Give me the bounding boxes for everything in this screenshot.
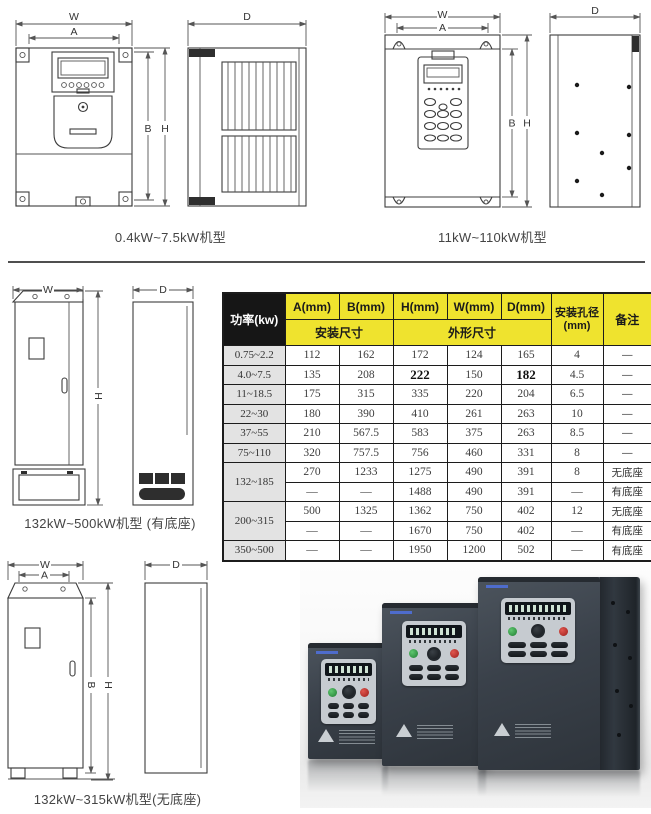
warning-label bbox=[318, 729, 375, 745]
medium-inverter-outline-svg: W A B H D bbox=[340, 5, 645, 220]
table-cell: 182 bbox=[501, 365, 551, 385]
table-cell: 1200 bbox=[447, 541, 501, 561]
keypad-panel bbox=[402, 621, 466, 686]
power-range-cell: 11~18.5 bbox=[223, 385, 285, 405]
table-cell: 有底座 bbox=[603, 482, 651, 502]
header-a: A(mm) bbox=[285, 293, 339, 320]
table-cell: 750 bbox=[447, 502, 501, 522]
dimension-lines: W H D bbox=[13, 284, 193, 505]
table-cell: 402 bbox=[501, 502, 551, 522]
drawing-cabinet-with-base: W H D bbox=[5, 283, 205, 511]
brand-logo bbox=[390, 611, 412, 614]
header-w: W(mm) bbox=[447, 293, 501, 320]
table-cell: 210 bbox=[285, 424, 339, 444]
table-row: 200~3155001325136275040212无底座 bbox=[223, 502, 651, 522]
table-cell: 1670 bbox=[393, 521, 447, 541]
header-hole-diameter: 安装孔径 (mm) bbox=[551, 293, 603, 346]
table-cell: 8 bbox=[551, 443, 603, 463]
dim-label-w: W bbox=[69, 11, 79, 23]
table-cell: 390 bbox=[339, 404, 393, 424]
table-cell: 315 bbox=[339, 385, 393, 405]
warning-triangle-icon bbox=[396, 724, 412, 737]
table-cell: 150 bbox=[447, 365, 501, 385]
header-outline-group: 外形尺寸 bbox=[393, 320, 551, 346]
table-cell: 222 bbox=[393, 365, 447, 385]
mounting-holes bbox=[611, 601, 615, 605]
table-row: 11~18.51753153352202046.5— bbox=[223, 385, 651, 405]
inverter-top-cap bbox=[478, 577, 600, 582]
stop-button bbox=[360, 688, 369, 697]
drawing-cabinet-no-base: W A B H D bbox=[5, 558, 230, 788]
table-cell: 175 bbox=[285, 385, 339, 405]
dim-label-a: A bbox=[41, 570, 48, 582]
hole-header-line2: (mm) bbox=[552, 320, 603, 333]
table-cell: 1488 bbox=[393, 482, 447, 502]
table-row: 4.0~7.51352082221501824.5— bbox=[223, 365, 651, 385]
table-cell: 无底座 bbox=[603, 463, 651, 483]
table-cell: 112 bbox=[285, 346, 339, 366]
front-view bbox=[16, 48, 132, 206]
power-range-cell: 350~500 bbox=[223, 541, 285, 561]
table-cell: 无底座 bbox=[603, 502, 651, 522]
front-view bbox=[8, 583, 115, 779]
side-view bbox=[133, 302, 193, 505]
warning-label bbox=[396, 724, 453, 740]
table-header-row-1: 功率(kw) A(mm) B(mm) H(mm) W(mm) D(mm) 安装孔… bbox=[223, 293, 651, 320]
datasheet-page: W A B H D bbox=[0, 0, 651, 814]
dim-label-d: D bbox=[243, 11, 251, 23]
dim-label-b: B bbox=[144, 123, 151, 135]
dim-label-h: H bbox=[92, 392, 104, 400]
table-cell: — bbox=[285, 541, 339, 561]
table-cell: — bbox=[603, 404, 651, 424]
inverter-front-panel bbox=[308, 643, 388, 759]
inverter-front-panel bbox=[382, 603, 486, 766]
table-cell: — bbox=[603, 346, 651, 366]
header-remark: 备注 bbox=[603, 293, 651, 346]
dimension-table: 功率(kw) A(mm) B(mm) H(mm) W(mm) D(mm) 安装孔… bbox=[222, 292, 651, 562]
table-row: 37~55210567.55833752638.5— bbox=[223, 424, 651, 444]
table-cell: 1325 bbox=[339, 502, 393, 522]
power-range-cell: 22~30 bbox=[223, 404, 285, 424]
stop-button bbox=[450, 649, 459, 658]
table-cell: 4 bbox=[551, 346, 603, 366]
table-cell: 8.5 bbox=[551, 424, 603, 444]
power-range-cell: 0.75~2.2 bbox=[223, 346, 285, 366]
table-cell: 410 bbox=[393, 404, 447, 424]
inverter-unit-small bbox=[308, 643, 388, 759]
section-divider bbox=[8, 261, 645, 263]
cabinet-base-outline-svg: W H D bbox=[5, 283, 205, 511]
inverter-front-panel bbox=[478, 577, 600, 770]
jog-knob bbox=[427, 647, 441, 661]
reflection-small bbox=[308, 759, 388, 803]
dim-label-d: D bbox=[172, 559, 180, 571]
dimension-lines: W A B H D bbox=[8, 559, 207, 780]
table-cell: 460 bbox=[447, 443, 501, 463]
table-cell: 331 bbox=[501, 443, 551, 463]
dim-label-h: H bbox=[523, 118, 531, 130]
table-cell: 490 bbox=[447, 463, 501, 483]
table-cell: 172 bbox=[393, 346, 447, 366]
table-row: ——1488490391—有底座 bbox=[223, 482, 651, 502]
table-cell: 135 bbox=[285, 365, 339, 385]
dim-label-h: H bbox=[161, 123, 169, 135]
header-d: D(mm) bbox=[501, 293, 551, 320]
table-cell: 756 bbox=[393, 443, 447, 463]
caption-small-inverter: 0.4kW~7.5kW机型 bbox=[8, 227, 333, 246]
table-cell: 1950 bbox=[393, 541, 447, 561]
caption-medium-inverter: 11kW~110kW机型 bbox=[340, 227, 645, 246]
warning-label bbox=[494, 723, 551, 739]
table-cell: — bbox=[285, 521, 339, 541]
inverter-top-cap bbox=[308, 643, 388, 648]
table-cell: 750 bbox=[447, 521, 501, 541]
front-view bbox=[385, 35, 500, 207]
table-cell: 500 bbox=[285, 502, 339, 522]
table-cell: 320 bbox=[285, 443, 339, 463]
keypad-panel bbox=[321, 659, 377, 724]
table-row: 0.75~2.21121621721241654— bbox=[223, 346, 651, 366]
brand-logo bbox=[486, 585, 508, 588]
header-h: H(mm) bbox=[393, 293, 447, 320]
status-led-row bbox=[508, 617, 568, 620]
table-cell: 1233 bbox=[339, 463, 393, 483]
drawing-medium-inverter: W A B H D bbox=[340, 5, 645, 220]
warning-triangle-icon bbox=[494, 723, 510, 736]
dim-label-b: B bbox=[85, 681, 97, 688]
table-cell: 261 bbox=[447, 404, 501, 424]
table-cell: — bbox=[603, 385, 651, 405]
table-cell: 502 bbox=[501, 541, 551, 561]
table-cell: — bbox=[551, 521, 603, 541]
table-row: 75~110320757.57564603318— bbox=[223, 443, 651, 463]
led-display bbox=[325, 663, 373, 676]
power-range-cell: 37~55 bbox=[223, 424, 285, 444]
led-display bbox=[505, 602, 571, 615]
caption-cabinet-with-base: 132kW~500kW机型 (有底座) bbox=[5, 513, 215, 532]
dim-label-d: D bbox=[159, 284, 167, 296]
dim-label-a: A bbox=[70, 26, 77, 38]
run-button bbox=[328, 688, 337, 697]
table-cell: 有底座 bbox=[603, 541, 651, 561]
table-cell: 6.5 bbox=[551, 385, 603, 405]
dim-label-d: D bbox=[591, 5, 599, 17]
table-cell: 10 bbox=[551, 404, 603, 424]
header-power: 功率(kw) bbox=[223, 293, 285, 346]
caption-cabinet-no-base: 132kW~315kW机型(无底座) bbox=[0, 789, 235, 808]
table-cell: 583 bbox=[393, 424, 447, 444]
dim-label-h: H bbox=[102, 681, 114, 689]
table-cell: 有底座 bbox=[603, 521, 651, 541]
table-cell: — bbox=[339, 521, 393, 541]
side-view bbox=[550, 35, 640, 207]
table-cell: 335 bbox=[393, 385, 447, 405]
table-row: 22~3018039041026126310— bbox=[223, 404, 651, 424]
table-cell: 270 bbox=[285, 463, 339, 483]
table-cell: — bbox=[603, 443, 651, 463]
dim-label-b: B bbox=[508, 118, 515, 130]
stop-button bbox=[559, 627, 568, 636]
header-mount-group: 安装尺寸 bbox=[285, 320, 393, 346]
power-range-cell: 75~110 bbox=[223, 443, 285, 463]
run-button bbox=[508, 627, 517, 636]
table-cell: 567.5 bbox=[339, 424, 393, 444]
inverter-unit-medium bbox=[382, 603, 486, 766]
table-cell: 4.5 bbox=[551, 365, 603, 385]
jog-knob bbox=[342, 685, 356, 699]
front-view bbox=[13, 291, 85, 505]
power-range-cell: 4.0~7.5 bbox=[223, 365, 285, 385]
run-button bbox=[409, 649, 418, 658]
table-cell: — bbox=[603, 424, 651, 444]
power-range-cell: 132~185 bbox=[223, 463, 285, 502]
side-view bbox=[145, 583, 207, 773]
keypad-buttons bbox=[405, 663, 463, 683]
warning-text-lines bbox=[417, 725, 453, 740]
cabinet-nobase-outline-svg: W A B H D bbox=[5, 558, 230, 788]
power-range-cell: 200~315 bbox=[223, 502, 285, 541]
header-b: B(mm) bbox=[339, 293, 393, 320]
warning-text-lines bbox=[515, 724, 551, 739]
table-cell: — bbox=[339, 541, 393, 561]
table-row: 132~185270123312754903918无底座 bbox=[223, 463, 651, 483]
inverter-side-heatsink bbox=[600, 577, 640, 770]
table-cell: 162 bbox=[339, 346, 393, 366]
hole-header-line1: 安装孔径 bbox=[552, 307, 603, 320]
led-display bbox=[406, 625, 462, 638]
inverter-top-cap bbox=[382, 603, 486, 608]
table-cell: — bbox=[551, 541, 603, 561]
table-cell: 204 bbox=[501, 385, 551, 405]
table-cell: 1362 bbox=[393, 502, 447, 522]
jog-knob bbox=[531, 624, 545, 638]
table-cell: 12 bbox=[551, 502, 603, 522]
side-view bbox=[188, 48, 306, 206]
table-cell: — bbox=[285, 482, 339, 502]
table-cell: 375 bbox=[447, 424, 501, 444]
table-cell: 8 bbox=[551, 463, 603, 483]
warning-text-lines bbox=[339, 730, 375, 745]
brand-logo bbox=[316, 651, 338, 654]
status-led-row bbox=[409, 640, 459, 643]
table-cell: 124 bbox=[447, 346, 501, 366]
drawing-small-inverter: W A B H D bbox=[8, 8, 333, 220]
table-cell: 402 bbox=[501, 521, 551, 541]
reflection-large bbox=[478, 770, 640, 806]
reflection-medium bbox=[382, 766, 486, 806]
dim-label-a: A bbox=[439, 22, 446, 34]
table-row: ——1670750402—有底座 bbox=[223, 521, 651, 541]
table-cell: 490 bbox=[447, 482, 501, 502]
table-cell: 263 bbox=[501, 404, 551, 424]
keypad-buttons bbox=[504, 640, 572, 660]
keypad-panel bbox=[501, 598, 575, 663]
table-cell: 1275 bbox=[393, 463, 447, 483]
table-row: 350~500——19501200502—有底座 bbox=[223, 541, 651, 561]
warning-triangle-icon bbox=[318, 729, 334, 742]
table-cell: 757.5 bbox=[339, 443, 393, 463]
table-cell: 165 bbox=[501, 346, 551, 366]
table-cell: — bbox=[551, 482, 603, 502]
table-cell: 263 bbox=[501, 424, 551, 444]
dim-label-w: W bbox=[43, 284, 53, 296]
dim-label-w: W bbox=[438, 9, 448, 21]
product-photo bbox=[300, 563, 651, 808]
table-cell: 391 bbox=[501, 463, 551, 483]
small-inverter-outline-svg: W A B H D bbox=[8, 8, 333, 220]
dimension-lines: W A B H D bbox=[16, 11, 306, 206]
keypad-buttons bbox=[324, 701, 374, 721]
table-cell: 208 bbox=[339, 365, 393, 385]
table-cell: — bbox=[603, 365, 651, 385]
table-cell: 391 bbox=[501, 482, 551, 502]
inverter-unit-large bbox=[478, 577, 640, 770]
table-cell: — bbox=[339, 482, 393, 502]
table-cell: 220 bbox=[447, 385, 501, 405]
status-led-row bbox=[328, 678, 370, 681]
table-cell: 180 bbox=[285, 404, 339, 424]
